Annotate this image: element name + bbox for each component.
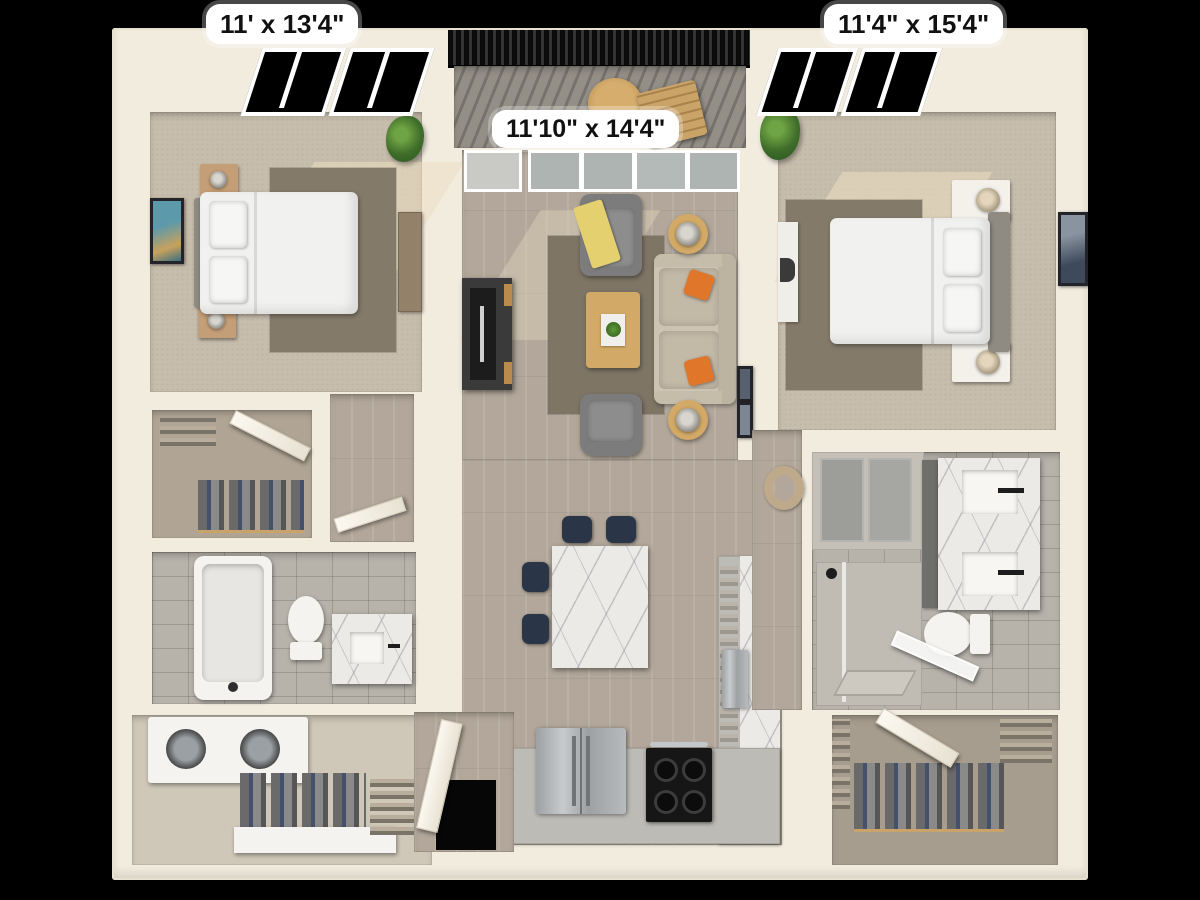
bedroom-right-floor [778, 112, 1056, 430]
dimension-label-living-room: 11'10" x 14'4" [492, 110, 679, 148]
coffee-table [586, 292, 640, 368]
balcony-railing [448, 30, 750, 68]
table-lamp [676, 222, 700, 246]
bedroom-right-window [758, 48, 939, 112]
bar-stool [522, 614, 549, 644]
floor-plan-canvas: 11' x 13'4" 11'4" x 15'4" 11'10" x 14'4" [0, 0, 1200, 900]
vanity-single [332, 614, 412, 684]
closet-shelf [832, 719, 850, 809]
closet-shelf [1000, 719, 1052, 763]
bar-stool [522, 562, 549, 592]
range-stove [646, 748, 712, 822]
table-plant [606, 322, 621, 337]
bedroom-left-floor [150, 112, 422, 392]
bedroom-left-wall-art [150, 198, 184, 264]
hanging-clothes [198, 480, 304, 533]
dresser [398, 212, 422, 312]
bathroom-left-floor [152, 552, 416, 704]
bathtub [194, 556, 272, 700]
side-table-bottom [668, 400, 708, 440]
bedroom-left-window [242, 48, 433, 112]
closet-left-floor [152, 410, 312, 538]
sliding-door-panel [464, 150, 522, 192]
closet-right-floor [832, 715, 1058, 865]
armchair-bottom [580, 394, 642, 456]
hanging-clothes [240, 773, 366, 830]
bed-headboard [988, 212, 1010, 352]
side-table-top [668, 214, 708, 254]
closet-shelf [160, 418, 216, 446]
dimension-label-bedroom-left: 11' x 13'4" [206, 4, 358, 44]
bedroom-left-bed [200, 192, 358, 314]
armchair-top [580, 194, 642, 276]
table-lamp [676, 408, 700, 432]
hanging-clothes [854, 763, 1004, 832]
dishwasher [722, 650, 748, 708]
toilet [286, 596, 326, 662]
living-wall-frames [737, 366, 753, 402]
living-wall-frames [737, 402, 753, 438]
laundry-floor [132, 715, 432, 865]
desk-chair [764, 466, 804, 510]
linen-closet [812, 452, 924, 550]
bathroom-right-floor [812, 452, 1060, 710]
desk-chair-small [780, 258, 795, 282]
bar-stool [562, 516, 592, 543]
bedroom-right-bed [830, 218, 990, 344]
dimension-label-bedroom-right: 11'4" x 15'4" [824, 4, 1003, 44]
balcony-door [528, 150, 740, 192]
bedroom-right-wall-art [1058, 212, 1088, 286]
step-shelves [370, 777, 414, 835]
vanity-double [938, 458, 1040, 610]
tv-console [462, 278, 512, 390]
refrigerator [536, 728, 626, 814]
vanity-drawers [922, 460, 938, 608]
sofa [654, 254, 736, 404]
kitchen-island [552, 546, 648, 668]
bar-stool [606, 516, 636, 543]
